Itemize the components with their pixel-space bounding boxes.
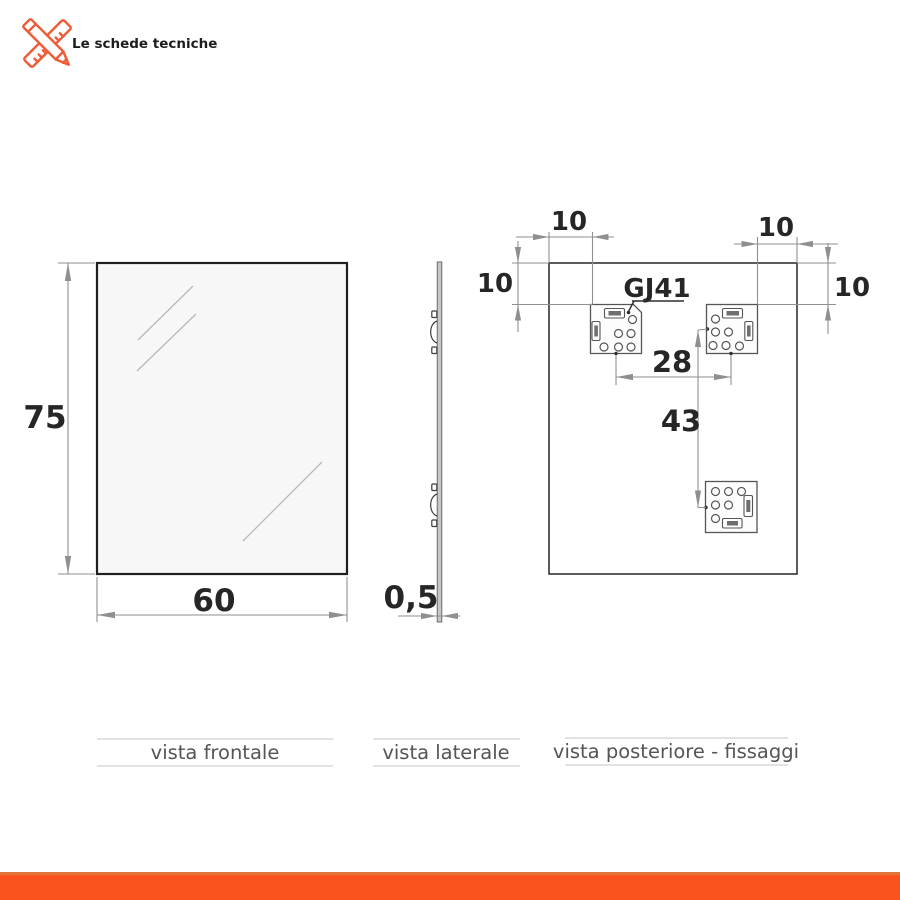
front-height-label: 75 [23, 400, 66, 436]
mirror-front-panel [97, 263, 347, 574]
rear-view-caption: vista posteriore - fissaggi [553, 740, 799, 763]
rear-offset-left-label: 10 [477, 269, 513, 299]
rear-offset-top-right-label: 10 [758, 213, 794, 243]
brand-name: Le schede tecniche [72, 36, 217, 52]
rear-view: 10 10 10 10 [477, 207, 870, 574]
caption-side: vista laterale [373, 739, 520, 766]
side-thickness-dimension: 0,5 [384, 580, 460, 619]
side-clip-bottom [431, 484, 438, 527]
rear-offset-right-label: 10 [834, 273, 870, 303]
side-clip-top [431, 311, 438, 354]
rear-spacing-vertical-label: 43 [661, 404, 701, 438]
side-view: 0,5 [384, 262, 460, 622]
front-width-dimension: 60 [97, 577, 347, 622]
rear-spacing-horizontal-label: 28 [652, 345, 692, 379]
fixing-bracket-bottom [706, 482, 758, 533]
brand-logo: Le schede tecniche [23, 19, 218, 69]
fixing-bracket-top-right [707, 305, 758, 354]
fixing-code-label: GJ41 [623, 274, 690, 304]
front-width-label: 60 [192, 583, 235, 619]
side-thickness-label: 0,5 [384, 580, 439, 616]
technical-drawing: Le schede tecniche 75 60 [0, 0, 900, 900]
side-view-caption: vista laterale [382, 741, 509, 764]
caption-rear: vista posteriore - fissaggi [553, 738, 799, 765]
footer-accent-bar [0, 872, 900, 900]
mirror-side-profile [437, 262, 442, 622]
technical-sheet-page: Le schede tecniche 75 60 [0, 0, 900, 900]
front-view-caption: vista frontale [151, 741, 280, 764]
fixing-bracket-top-left [591, 305, 642, 354]
front-view: 75 60 [23, 263, 347, 622]
front-height-dimension: 75 [23, 263, 95, 574]
caption-front: vista frontale [97, 739, 333, 766]
rear-offset-top-left-label: 10 [551, 207, 587, 237]
pencil-ruler-cross-icon [23, 19, 73, 69]
